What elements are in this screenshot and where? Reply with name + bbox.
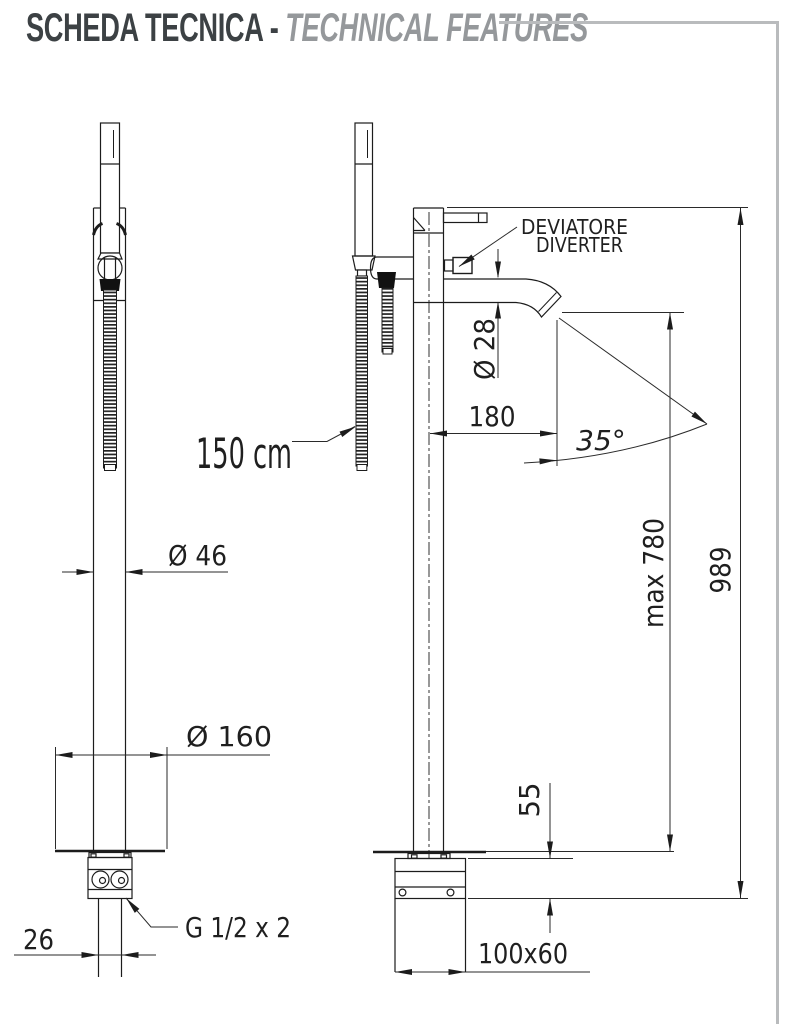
hose-ball-joint (98, 253, 122, 291)
left-view (55, 123, 165, 977)
label-underfloor-box-height: 55 (513, 783, 546, 818)
hose-outlet-stub (382, 288, 393, 354)
dim-base-plate-diameter (56, 747, 271, 849)
label-diverter-english: DIVERTER (536, 233, 623, 257)
label-spout-angle: 35° (576, 424, 626, 457)
label-base-plate-diameter: Ø 160 (186, 720, 272, 753)
hose-nut (100, 279, 121, 291)
dim-total-height (447, 208, 748, 899)
right-view (353, 123, 562, 972)
label-spout-max-height: max 780 (637, 518, 670, 628)
label-spout-diameter: Ø 28 (468, 318, 501, 380)
hose-outlet-nut (377, 272, 396, 288)
label-supply-pipe-width: 26 (23, 923, 54, 956)
underfloor-connection-box-front (395, 859, 466, 973)
supply-pipes (99, 899, 122, 978)
spout (444, 279, 562, 317)
dimension-labels: 150 cm Ø 46 Ø 160 26 G 1/2 x 2 180 35° Ø… (23, 215, 737, 970)
mixer-body (371, 257, 414, 288)
label-supply-connection: G 1/2 x 2 (185, 911, 291, 944)
label-underfloor-box-footprint: 100x60 (478, 937, 568, 970)
shower-hose-side (104, 290, 117, 471)
hand-shower-side (101, 123, 120, 253)
technical-sheet-page: SCHEDA TECNICA -TECHNICAL FEATURES (0, 0, 803, 1024)
label-column-diameter: Ø 46 (168, 539, 227, 572)
faucet-technical-drawing: 150 cm Ø 46 Ø 160 26 G 1/2 x 2 180 35° Ø… (0, 0, 803, 1024)
label-total-height: 989 (704, 547, 737, 594)
column-front (414, 208, 444, 858)
leader-supply-connection (126, 898, 178, 927)
hand-shower-front (353, 123, 376, 270)
label-hose-length: 150 cm (196, 429, 292, 478)
shower-holder-icon (94, 224, 126, 236)
lever-handle (444, 213, 488, 223)
shower-hose-front (356, 270, 368, 471)
base-plate-front (373, 852, 486, 859)
base-plate-side (55, 851, 165, 858)
label-spout-reach: 180 (469, 400, 516, 433)
underfloor-connection-box-side (88, 858, 132, 899)
